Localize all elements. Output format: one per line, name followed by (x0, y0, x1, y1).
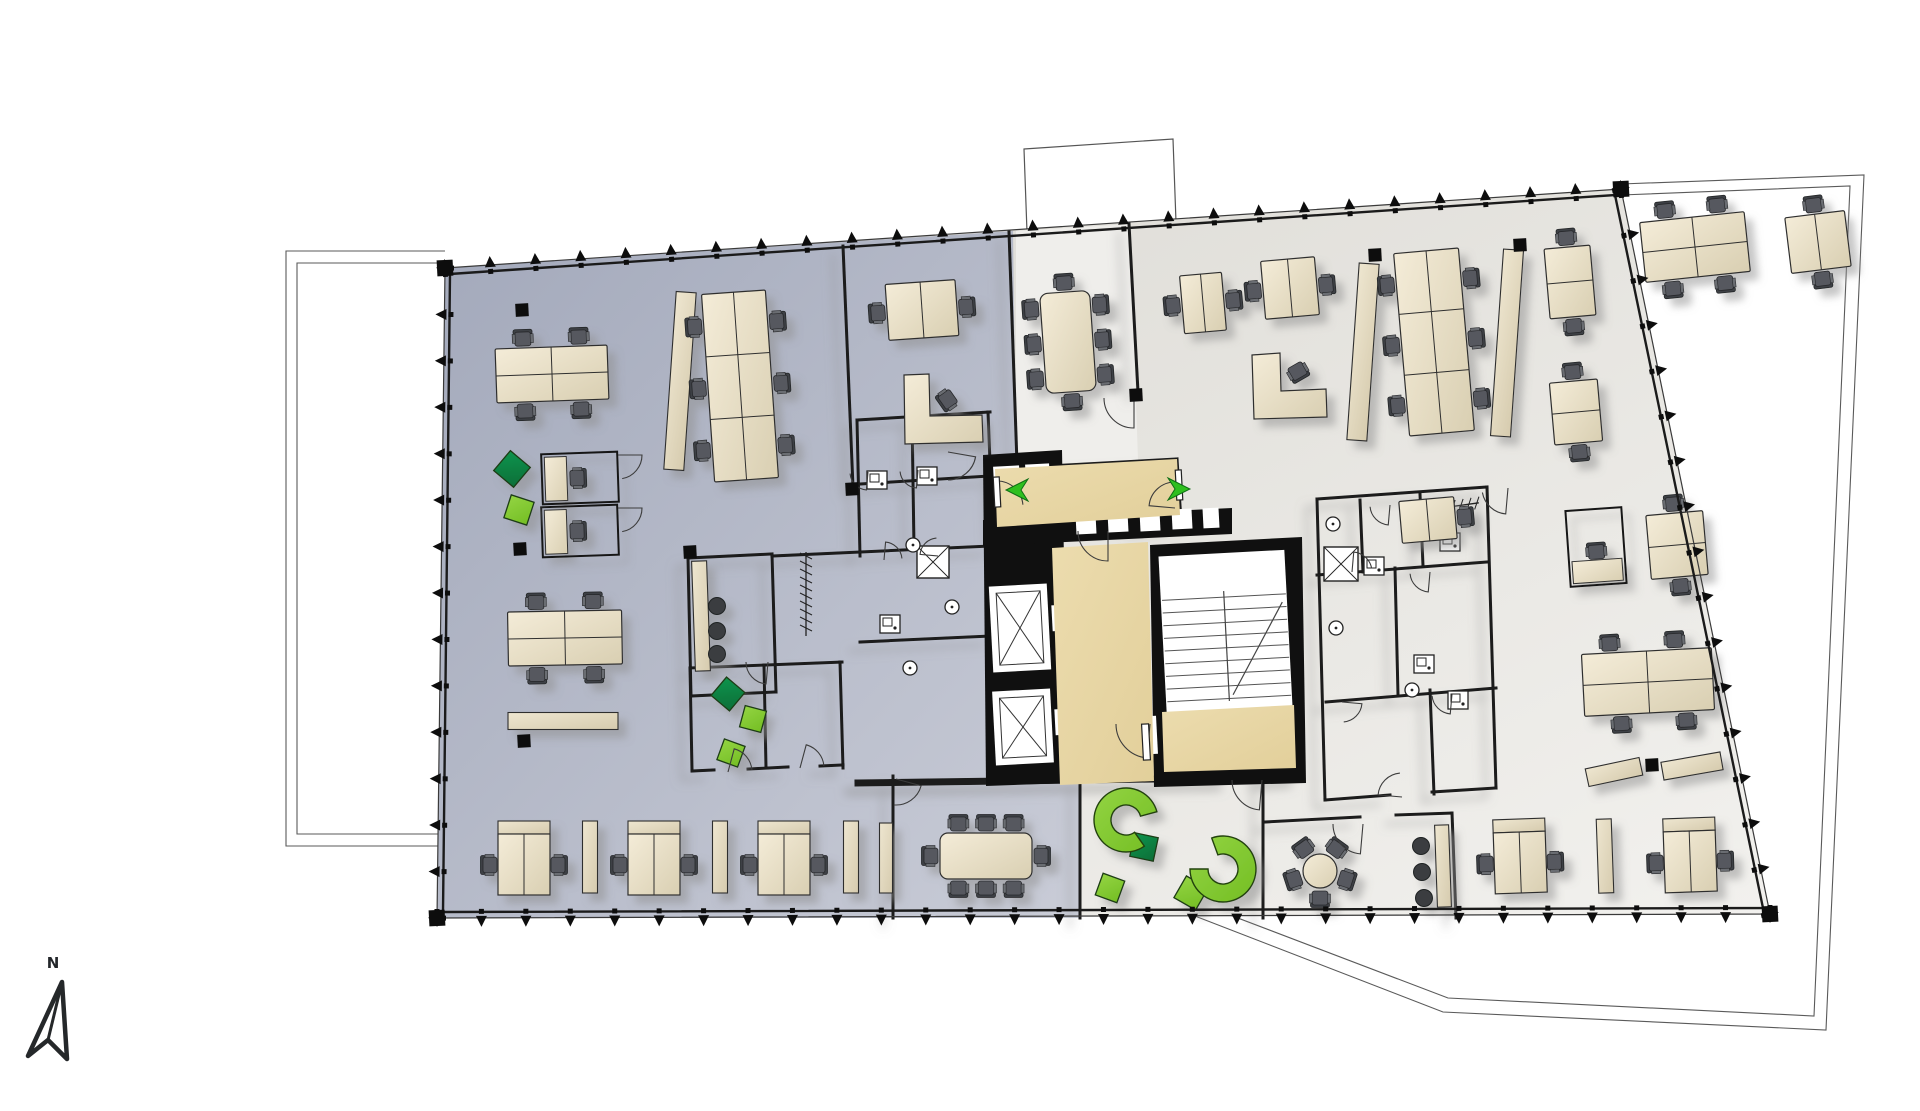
mullion-base (923, 908, 928, 913)
mullion-base (1012, 907, 1017, 912)
mullion-base (714, 254, 719, 259)
chair-seat (1380, 277, 1395, 294)
office-chair (1476, 853, 1493, 875)
mullion-dart (965, 914, 976, 925)
mullion-base (1279, 906, 1284, 911)
mullion-dart (1587, 913, 1598, 924)
office-chair (1318, 274, 1336, 296)
chair-arm (1461, 524, 1470, 528)
office-chair (1034, 846, 1051, 867)
structural-column (1513, 238, 1527, 252)
mullion-base (448, 358, 453, 363)
credenza (758, 821, 810, 834)
chair-seat (1027, 336, 1042, 353)
column-rect (1513, 238, 1527, 252)
column-rect (517, 734, 531, 748)
chair-seat (1092, 296, 1107, 313)
chair-seat (570, 330, 586, 345)
mullion-base (1677, 505, 1683, 511)
counter-top (1435, 825, 1452, 907)
mullion-dart (1098, 914, 1109, 925)
office-chair (958, 296, 976, 318)
mullion-base (1257, 217, 1262, 222)
mullion-dart (1720, 912, 1731, 923)
chair-arm (1323, 292, 1332, 296)
chair-arm (966, 819, 969, 828)
mullion-base (1649, 369, 1655, 375)
mullion-dart (846, 231, 858, 243)
mullion-dart (920, 915, 931, 926)
chair-seat (1468, 330, 1483, 347)
office-chair (1473, 387, 1491, 409)
office-chair (1021, 298, 1039, 320)
mullion-base (1323, 906, 1328, 911)
office-chair (551, 855, 568, 876)
office-chair (1802, 195, 1825, 214)
chair-arm (1228, 289, 1237, 293)
chair-seat (1006, 817, 1022, 831)
mullion-base (657, 908, 662, 913)
chair-arm (699, 458, 708, 462)
wc-dot (893, 626, 896, 629)
mullion-base (1456, 906, 1461, 911)
mullion-dart (1570, 183, 1582, 195)
mullion-base (1057, 907, 1062, 912)
mullion-base (1658, 414, 1664, 420)
chair-arm (1383, 293, 1392, 297)
chair-arm (1663, 500, 1667, 509)
mullion-base (1234, 907, 1239, 912)
chair-arm (776, 372, 785, 376)
partition-wall (748, 767, 788, 769)
chair-arm (1476, 388, 1485, 392)
mullion-base (1393, 208, 1398, 213)
pier-rect (429, 910, 446, 927)
office-chair (1097, 363, 1115, 385)
chair-seat (924, 848, 938, 864)
office-chair (1663, 631, 1685, 649)
chair-arm (689, 316, 698, 320)
chair-seat (811, 857, 825, 873)
chair-arm (814, 873, 823, 876)
chair-seat (1601, 637, 1618, 652)
mullion-base (1145, 907, 1150, 912)
chair-seat (1225, 292, 1240, 309)
mullion-base (444, 683, 449, 688)
mullion-dart (1676, 912, 1687, 923)
sideboard (880, 823, 893, 893)
mullion-base (759, 251, 764, 256)
partition-wall (1396, 813, 1452, 815)
chair-arm (1720, 868, 1729, 871)
chair-arm (1477, 406, 1486, 410)
chair-arm (994, 819, 997, 828)
toilet-icon (1414, 655, 1434, 673)
chair-seat (1588, 544, 1605, 559)
chair-arm (745, 873, 754, 876)
chair-seat (585, 594, 601, 608)
structural-column (515, 303, 529, 317)
mullion-dart (429, 866, 440, 877)
sink-drain (1335, 627, 1338, 630)
desk-pair (1783, 192, 1854, 292)
mullion-base (1302, 214, 1307, 219)
chair-seat (1094, 331, 1109, 348)
mullion-dart (936, 225, 948, 237)
chair-arm (1617, 638, 1620, 647)
chair-seat (773, 375, 788, 392)
chair-arm (994, 884, 997, 893)
mullion-base (443, 730, 448, 735)
chair-arm (573, 520, 582, 523)
chair-seat (517, 404, 533, 419)
chair-arm (485, 855, 494, 858)
mullion-base (1630, 278, 1636, 284)
chair-seat (1716, 275, 1733, 291)
pier-rect (1613, 181, 1630, 198)
stool (1414, 864, 1431, 881)
chair-arm (1037, 846, 1046, 849)
office-chair (1599, 634, 1621, 652)
chair-arm (966, 884, 969, 893)
office-chair (1670, 578, 1692, 596)
chair-seat (1029, 371, 1044, 388)
mullion-dart (1542, 913, 1553, 924)
chair-seat (769, 313, 784, 330)
chair-seat (1390, 397, 1405, 414)
office-chair (1676, 713, 1698, 731)
chair-seat (573, 402, 589, 417)
chair-seat (1479, 856, 1494, 872)
office-chair (1547, 851, 1564, 873)
mullion-base (1733, 776, 1739, 782)
office-chair (1568, 444, 1590, 462)
office-chair (1094, 328, 1112, 350)
office-chair (1662, 280, 1685, 299)
chair-arm (615, 873, 624, 876)
chair-seat (1547, 854, 1562, 870)
mullion-base (1723, 905, 1728, 910)
sideboard-top (844, 821, 859, 893)
chair-seat (1678, 713, 1695, 728)
chair-arm (1100, 364, 1109, 368)
office-chair (1706, 195, 1729, 214)
chair-seat (1246, 283, 1261, 300)
chair-arm (1328, 894, 1331, 903)
mullion-base (1212, 220, 1217, 225)
office-chair (527, 667, 548, 684)
sink-drain (951, 606, 954, 609)
office-chair (685, 316, 703, 338)
partition-wall (690, 668, 692, 770)
counter-top (692, 561, 711, 671)
chair-arm (1101, 382, 1110, 386)
floor-plan-svg: N (0, 0, 1920, 1111)
chair-arm (976, 819, 979, 828)
office-chair (1388, 395, 1406, 417)
mullion-dart (609, 915, 620, 926)
booth-desk (1572, 558, 1623, 583)
chair-arm (1032, 386, 1041, 390)
sink-drain (1411, 689, 1414, 692)
chair-arm (1694, 715, 1697, 724)
toilet-icon (867, 471, 887, 489)
mullion-base (442, 823, 447, 828)
desk-cluster-4 (1638, 193, 1753, 300)
chair-seat (1097, 366, 1112, 383)
mullion-dart (1479, 189, 1491, 201)
mullion-base (1031, 232, 1036, 237)
wc-dot (1461, 702, 1464, 705)
elevator-lobby (1052, 542, 1154, 785)
credenza (628, 821, 680, 834)
office-chair (1561, 362, 1583, 380)
office-chair (773, 372, 791, 394)
chair-arm (1586, 548, 1590, 557)
office-chair (1462, 267, 1480, 289)
mullion-base (850, 244, 855, 249)
mullion-dart (565, 916, 576, 927)
office-chair (922, 846, 939, 867)
chair-arm (1021, 819, 1024, 828)
chair-arm (573, 538, 582, 541)
office-chair (769, 310, 787, 332)
office-chair (976, 881, 997, 898)
structural-column (1368, 248, 1382, 262)
mullion-base (1705, 640, 1711, 646)
sideboard-top (880, 823, 893, 893)
office-chair (1163, 295, 1181, 317)
mullion-dart (430, 773, 441, 784)
chair-arm (1599, 639, 1602, 648)
mullion-dart (1498, 913, 1509, 924)
chair-seat (1666, 633, 1683, 648)
column-rect (1645, 758, 1659, 772)
mullion-dart (665, 243, 677, 255)
chair-arm (533, 407, 536, 416)
door-leaf (993, 477, 1001, 507)
chair-arm (1459, 506, 1468, 510)
chair-arm (615, 855, 624, 858)
chair-arm (1467, 285, 1476, 289)
pier-rect (437, 260, 454, 277)
mullion-dart (1208, 207, 1220, 219)
office-chair (811, 855, 828, 876)
chair-seat (978, 881, 994, 895)
mullion-dart (434, 402, 445, 413)
chair-seat (958, 298, 973, 315)
mullion-base (1640, 323, 1646, 329)
mullion-base (444, 637, 449, 642)
chair-arm (1470, 327, 1479, 331)
column-rect (1129, 388, 1143, 402)
credenza (1493, 818, 1545, 833)
mullion-base (895, 241, 900, 246)
chair-seat (1564, 364, 1581, 379)
chair-arm (545, 670, 548, 679)
office-chair (1061, 393, 1083, 411)
chair-arm (962, 314, 971, 318)
sink-icon (1329, 621, 1343, 635)
chair-arm (1580, 366, 1584, 375)
chair-seat (778, 437, 793, 454)
office-chair (689, 378, 707, 400)
column-rect (515, 303, 529, 317)
sideboard (844, 821, 859, 893)
chair-arm (1676, 716, 1679, 725)
chair-seat (613, 857, 627, 873)
chair-arm (874, 320, 883, 324)
office-chair (570, 467, 587, 489)
chair-arm (1071, 277, 1075, 286)
sink-icon (903, 661, 917, 675)
mullion-dart (575, 250, 587, 262)
chair-seat (687, 319, 702, 336)
mullion-base (445, 591, 450, 596)
mullion-base (805, 248, 810, 253)
mullion-dart (1054, 914, 1065, 925)
mullion-base (624, 260, 629, 265)
chair-arm (1097, 329, 1106, 333)
mullion-base (446, 544, 451, 549)
chair-seat (978, 817, 994, 831)
sideboard-top (1596, 819, 1614, 893)
mullion-dart (1276, 913, 1287, 924)
chair-arm (1381, 275, 1390, 279)
chair-arm (695, 396, 704, 400)
chair-seat (1318, 276, 1333, 293)
mullion-base (448, 312, 453, 317)
chair-arm (543, 597, 546, 606)
door-leaf-rect (993, 477, 1001, 507)
chair-arm (1096, 312, 1105, 316)
chair-seat (1462, 270, 1477, 287)
chair-arm (1230, 307, 1239, 311)
chair-arm (1664, 636, 1667, 645)
sideboard (713, 821, 728, 893)
mullion-dart (1344, 198, 1356, 210)
sink-icon (906, 538, 920, 552)
facade-corner-pier (429, 910, 446, 927)
chair-seat (1165, 297, 1180, 314)
desk-top (940, 833, 1032, 879)
mullion-base (612, 908, 617, 913)
sink-drain (909, 667, 912, 670)
chair-arm (777, 390, 786, 394)
chair-arm (1030, 352, 1039, 356)
chair-arm (961, 296, 970, 300)
mullion-dart (1409, 913, 1420, 924)
mullion-base (986, 235, 991, 240)
shower-icon (917, 546, 949, 578)
mullion-base (1101, 907, 1106, 912)
sideboard (583, 821, 598, 893)
chair-arm (684, 873, 693, 876)
mullion-dart (431, 680, 442, 691)
mullion-base (1621, 233, 1627, 239)
mullion-dart (1524, 186, 1536, 198)
door-leaf-rect (1142, 724, 1151, 760)
chair-arm (1682, 635, 1685, 644)
mullion-base (790, 908, 795, 913)
mullion-base (523, 909, 528, 914)
sideboard (1596, 819, 1614, 893)
mullion-dart (430, 727, 441, 738)
chair-arm (1563, 323, 1567, 332)
chair-arm (602, 669, 605, 678)
office-chair (611, 855, 628, 876)
chair-seat (1708, 198, 1725, 214)
wc-dot (1377, 568, 1380, 571)
chair-arm (1652, 871, 1661, 874)
wc-dot (1453, 544, 1456, 547)
mullion-dart (787, 915, 798, 926)
chair-seat (570, 523, 585, 539)
mullion-dart (433, 495, 444, 506)
column-rect (845, 482, 859, 496)
mullion-base (1166, 223, 1171, 228)
office-chair (570, 520, 587, 542)
chair-arm (1169, 313, 1178, 317)
mullion-dart (529, 253, 541, 265)
office-chair (1653, 200, 1676, 219)
office-chair (1585, 542, 1607, 560)
mullion-base (1590, 906, 1595, 911)
mullion-dart (698, 915, 709, 926)
chair-arm (1392, 395, 1401, 399)
chair-arm (1003, 819, 1006, 828)
mullion-base (443, 776, 448, 781)
mullion-base (447, 405, 452, 410)
chair-seat (1024, 301, 1039, 318)
chair-seat (871, 305, 886, 322)
chair-arm (1472, 345, 1481, 349)
chair-arm (1714, 280, 1718, 289)
chair-arm (1321, 274, 1330, 278)
chair-arm (1587, 447, 1591, 456)
column-rect (513, 542, 527, 556)
mullion-dart (756, 237, 768, 249)
chair-seat (1656, 203, 1673, 219)
chair-arm (571, 405, 574, 414)
mullion-dart (801, 234, 813, 246)
elevator-shaft (992, 689, 1054, 766)
chair-arm (772, 310, 781, 314)
mullion-dart (484, 256, 496, 268)
mullion-base (746, 908, 751, 913)
sink-icon (1405, 683, 1419, 697)
chair-seat (1055, 276, 1072, 291)
chair-arm (1688, 581, 1692, 590)
chair-seat (681, 857, 695, 873)
office-chair (681, 855, 698, 876)
chair-seat (696, 442, 711, 459)
facade-corner-pier (1613, 181, 1630, 198)
pier-rect (1762, 906, 1779, 923)
office-chair (568, 327, 590, 344)
chair-seat (1006, 881, 1022, 895)
chair-arm (1670, 583, 1674, 592)
office-chair (515, 404, 537, 421)
mullion-dart (710, 240, 722, 252)
chair-arm (781, 434, 790, 438)
chair-arm (589, 405, 592, 414)
chair-arm (1053, 279, 1057, 288)
chair-arm (554, 855, 563, 858)
chair-arm (872, 302, 881, 306)
chair-arm (1387, 335, 1396, 339)
chair-arm (926, 864, 935, 867)
